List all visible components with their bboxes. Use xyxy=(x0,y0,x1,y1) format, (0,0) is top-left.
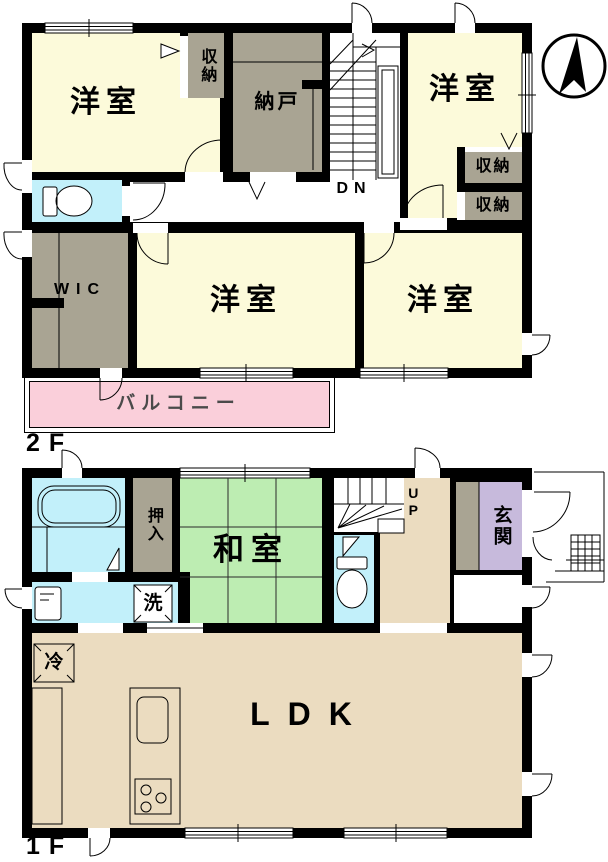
room-balcony xyxy=(29,381,330,428)
hallway-1f-lower xyxy=(380,532,450,623)
room-yoshitsu-se xyxy=(364,233,522,368)
room-washitsu xyxy=(180,478,322,623)
room-genkan xyxy=(479,482,522,570)
floor-plan: 洋室 収納 納戸 DN 洋室 収納 収納 WIC 洋室 洋室 バルコニー 2F … xyxy=(0,0,608,862)
hallway-2f xyxy=(130,182,400,222)
stairwell-1f xyxy=(334,478,404,532)
room-shuno-e1 xyxy=(465,152,522,183)
hall-by-genkan xyxy=(454,575,522,623)
stairwell-2f xyxy=(330,33,400,182)
room-ldk xyxy=(32,633,522,828)
room-yoshitsu-ne-ext xyxy=(408,147,457,218)
wall-stub-washroom xyxy=(178,572,190,623)
washroom-1f xyxy=(32,582,178,623)
room-shuno-n xyxy=(188,33,224,98)
room-yoshitsu-ne xyxy=(408,33,522,147)
toilet-2f xyxy=(32,180,122,222)
room-shuno-e2 xyxy=(465,192,522,220)
room-yoshitsu-s xyxy=(137,233,355,368)
toilet-1f xyxy=(334,535,374,623)
entry-porch xyxy=(534,472,604,582)
compass-north-arrow-icon xyxy=(543,35,605,97)
genkan-step-strip xyxy=(456,482,479,570)
room-nando xyxy=(233,33,322,172)
room-yoshitsu-nw xyxy=(32,33,180,172)
bathroom-1f xyxy=(32,478,125,572)
room-oshiire xyxy=(133,478,172,572)
room-wic xyxy=(32,233,128,368)
room-yoshitsu-nw-ext xyxy=(180,98,220,172)
